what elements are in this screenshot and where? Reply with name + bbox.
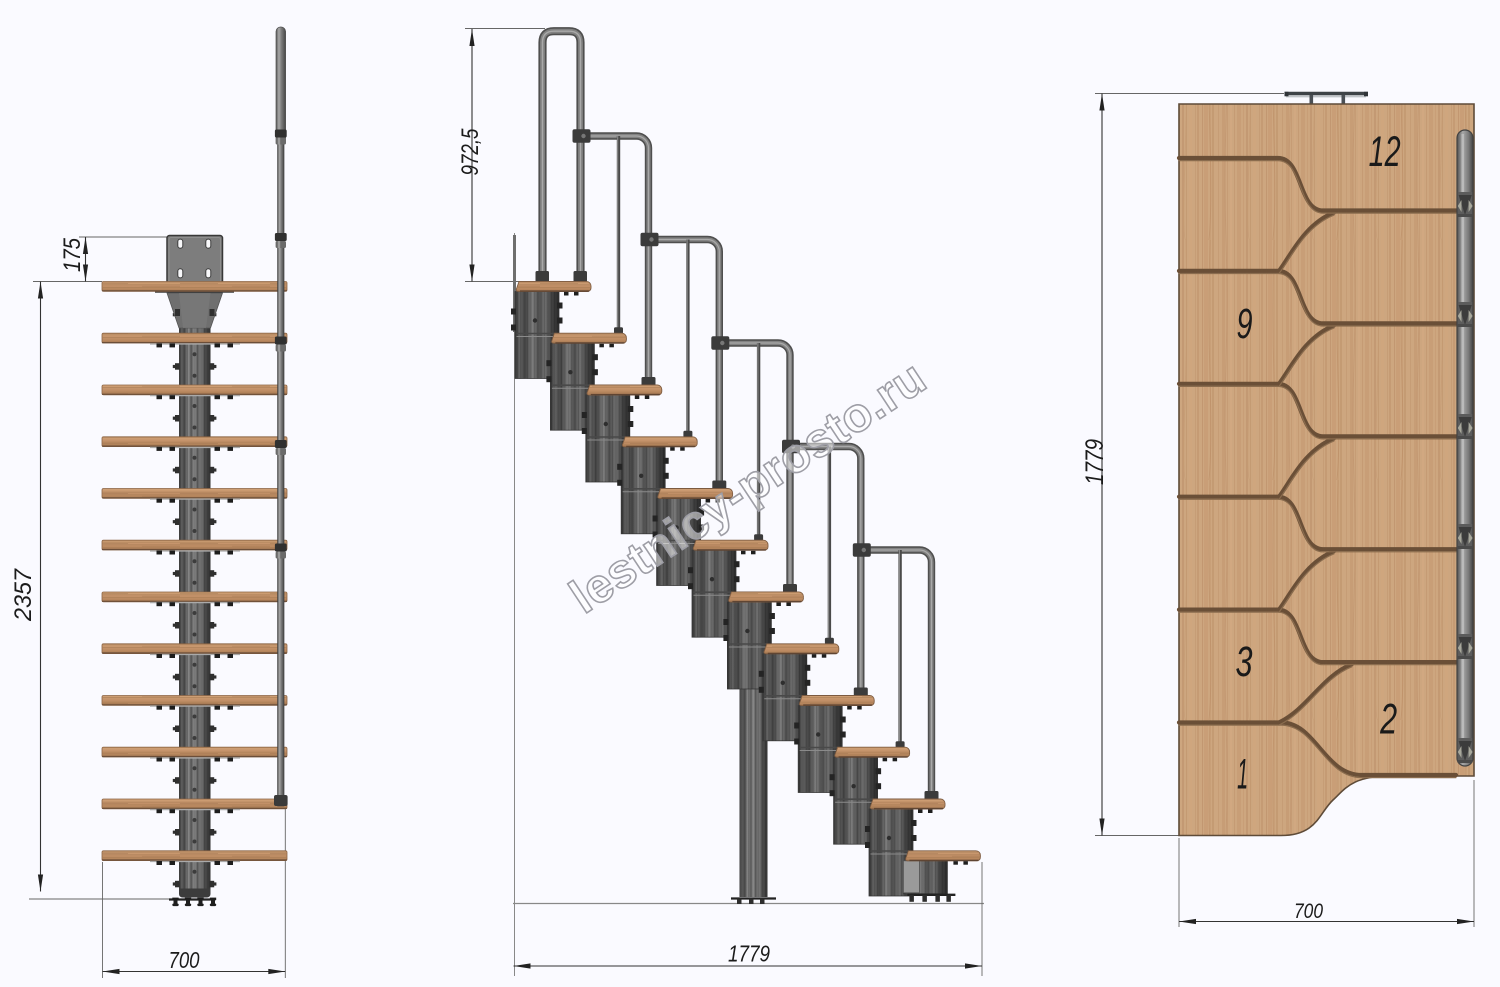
svg-text:700: 700 [169,947,200,973]
svg-text:1779: 1779 [1081,439,1109,485]
svg-text:700: 700 [1294,900,1323,923]
svg-text:972,5: 972,5 [457,128,484,176]
svg-text:175: 175 [59,237,86,272]
svg-text:12: 12 [1369,128,1401,176]
svg-text:1: 1 [1237,751,1248,799]
svg-text:3: 3 [1236,638,1253,686]
svg-text:9: 9 [1237,300,1253,348]
svg-text:1779: 1779 [728,941,770,967]
svg-text:2357: 2357 [10,567,37,622]
svg-text:2: 2 [1379,696,1397,744]
